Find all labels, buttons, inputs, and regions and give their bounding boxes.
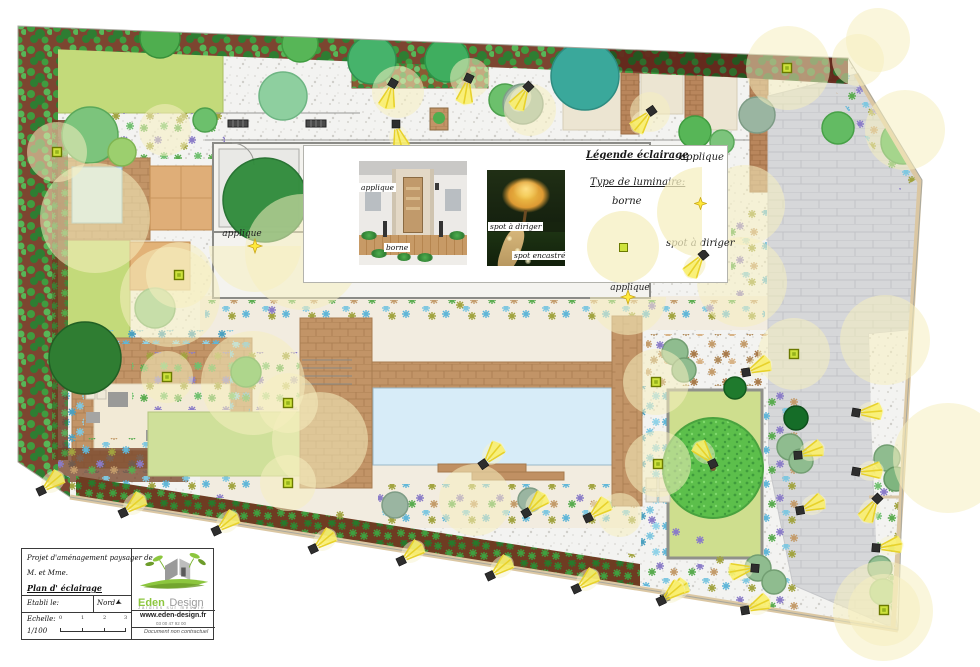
lawn-top-left bbox=[55, 45, 223, 113]
bench bbox=[306, 120, 326, 127]
scale-bar: 0 1 2 3 bbox=[60, 615, 126, 637]
front-door bbox=[403, 177, 423, 233]
borne-light bbox=[163, 373, 172, 382]
plan-annotation: applique bbox=[222, 229, 262, 239]
borne-light bbox=[175, 271, 184, 280]
garden-furniture bbox=[108, 392, 128, 407]
bollard-light bbox=[383, 221, 387, 237]
project-line1: Projet d'aménagement paysager de bbox=[27, 554, 153, 562]
disclaimer: Document non contractuel bbox=[144, 629, 208, 635]
planter-shrub bbox=[433, 112, 445, 124]
legend-item-applique-label: applique bbox=[680, 152, 724, 163]
borne-light bbox=[654, 460, 663, 469]
borne-light bbox=[53, 148, 62, 157]
project-line2: M. et Mme. bbox=[27, 569, 68, 577]
lighting-legend-panel: applique borne spot à diriger spot encas… bbox=[303, 145, 728, 283]
light-halo bbox=[439, 464, 511, 536]
light-halo bbox=[139, 104, 191, 156]
bollard-light bbox=[439, 221, 443, 237]
scale-label: Echelle: bbox=[27, 615, 56, 623]
company-tagline: Jardins sur mesure bbox=[138, 605, 205, 610]
light-halo bbox=[840, 295, 930, 385]
bench bbox=[228, 120, 248, 127]
landscape-plan-sheet: appliqueapplique applique borne bbox=[0, 0, 980, 667]
legend-title: Légende éclairage bbox=[586, 150, 689, 161]
photo-label-spot-diriger: spot à diriger bbox=[488, 222, 543, 231]
scale-value: 1/100 bbox=[27, 627, 47, 635]
light-halo bbox=[865, 90, 945, 170]
eden-design-logo bbox=[138, 551, 210, 593]
spot-light-icon bbox=[676, 250, 710, 282]
borne-light bbox=[783, 64, 792, 73]
title-block: Projet d'aménagement paysager de M. et M… bbox=[21, 548, 214, 640]
borne-light bbox=[284, 399, 293, 408]
photo-label-spot-encastre: spot encastré bbox=[512, 251, 567, 260]
garden-furniture bbox=[86, 412, 100, 423]
entrance-photo bbox=[359, 161, 467, 265]
applique-light-icon bbox=[694, 197, 707, 210]
pool-deck-north bbox=[372, 362, 612, 388]
established-label: Etabli le: bbox=[27, 599, 59, 607]
wall-sconce bbox=[435, 183, 439, 190]
light-halo bbox=[846, 8, 910, 72]
legend-item-borne-label: borne bbox=[612, 196, 642, 207]
borne-light-icon bbox=[619, 243, 628, 252]
borne-light bbox=[790, 350, 799, 359]
borne-light bbox=[284, 479, 293, 488]
company-website[interactable]: www.eden-design.fr bbox=[140, 612, 206, 619]
borne-light bbox=[880, 606, 889, 615]
photo-label-borne: borne bbox=[384, 243, 410, 252]
company-phone: 03 00 47 92 00 bbox=[156, 621, 186, 626]
plan-title: Plan d' éclairage bbox=[27, 583, 102, 593]
photo-label-applique: applique bbox=[359, 183, 396, 192]
plan-annotation: applique bbox=[610, 283, 650, 293]
borne-light bbox=[652, 378, 661, 387]
